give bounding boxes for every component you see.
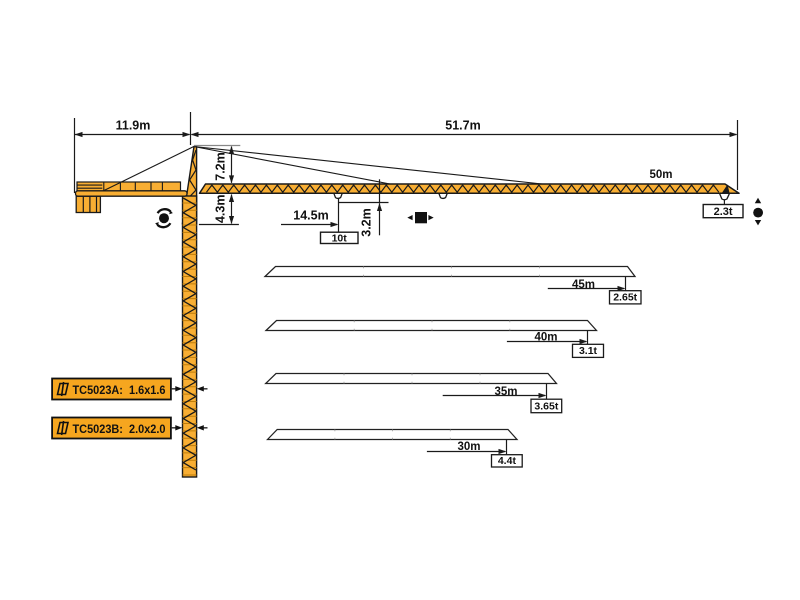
svg-text:3.2m: 3.2m — [359, 208, 373, 237]
svg-text:35m: 35m — [494, 386, 517, 398]
svg-text:51.7m: 51.7m — [445, 119, 480, 133]
svg-text:40m: 40m — [534, 332, 557, 344]
svg-text:7.2m: 7.2m — [214, 152, 228, 181]
svg-text:11.9m: 11.9m — [116, 119, 151, 133]
svg-text:2.65t: 2.65t — [613, 292, 637, 304]
svg-text:45m: 45m — [572, 279, 595, 291]
svg-text:10t: 10t — [332, 233, 348, 245]
svg-text:TC5023A: 1.6x1.6: TC5023A: 1.6x1.6 — [73, 383, 166, 397]
svg-text:50m: 50m — [649, 169, 672, 181]
svg-text:4.3m: 4.3m — [214, 195, 228, 224]
svg-text:3.65t: 3.65t — [534, 401, 558, 413]
svg-text:4.4t: 4.4t — [498, 455, 517, 467]
svg-text:14.5m: 14.5m — [293, 209, 328, 223]
svg-text:TC5023B: 2.0x2.0: TC5023B: 2.0x2.0 — [73, 422, 166, 436]
svg-text:2.3t: 2.3t — [714, 206, 733, 218]
svg-text:3.1t: 3.1t — [579, 345, 598, 357]
svg-text:30m: 30m — [457, 441, 480, 453]
